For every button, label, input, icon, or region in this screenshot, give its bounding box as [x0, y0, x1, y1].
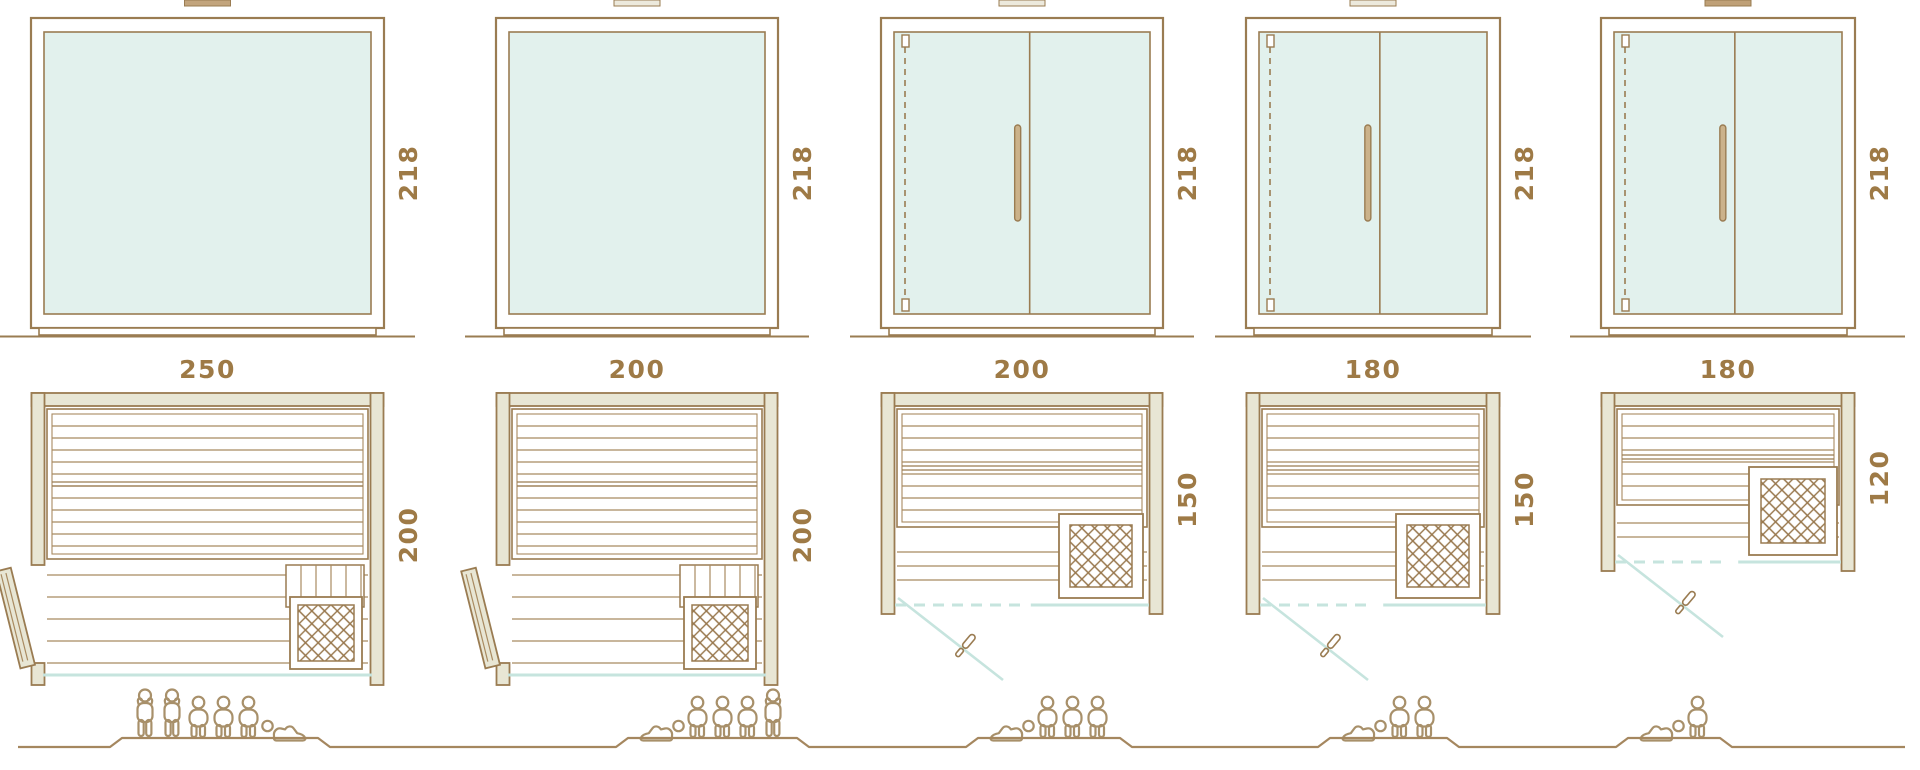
- person-sitting-icon: [739, 697, 757, 737]
- elevation-base: [889, 328, 1155, 335]
- glass-panel: [509, 32, 765, 314]
- heater-icon: [1396, 514, 1480, 598]
- door-handle-icon: [1015, 125, 1021, 221]
- person-standing-icon: [766, 690, 781, 737]
- diagram-canvas: 2182502002182002002182001502181801502181…: [0, 0, 1920, 770]
- height-dimension: 218: [788, 145, 817, 202]
- floor-plan-sauna-200x200: [461, 393, 777, 685]
- floor-plan-sauna-250x200: [0, 393, 384, 685]
- bench-platform: [512, 409, 762, 559]
- person-sitting-icon: [1089, 697, 1107, 737]
- capacity-ground-line: [18, 738, 1905, 747]
- glass-panel: [1614, 32, 1842, 314]
- roof-tab-4: [1350, 0, 1396, 6]
- height-dimension: 218: [1173, 145, 1202, 202]
- person-standing-icon: [138, 690, 153, 737]
- glass-panel: [44, 32, 371, 314]
- capacity-group-sauna-200x150: [991, 697, 1107, 741]
- person-sitting-icon: [190, 697, 208, 737]
- elevation-sauna-180x150: [1215, 18, 1531, 337]
- plan-back-wall: [32, 393, 384, 406]
- bench-edge: [52, 414, 363, 554]
- heater-icon: [684, 597, 756, 669]
- plan-back-wall: [882, 393, 1163, 406]
- width-dimension: 200: [994, 355, 1051, 384]
- bench-platform: [1262, 409, 1484, 527]
- person-sitting-icon: [1416, 697, 1434, 737]
- plan-right-wall: [1150, 393, 1163, 614]
- plan-left-wall: [32, 393, 45, 565]
- elevation-sauna-180x120: [1570, 18, 1905, 337]
- floor-plan-sauna-180x120: [1602, 393, 1855, 637]
- elevation-base: [1609, 328, 1847, 335]
- person-sitting-icon: [1689, 697, 1707, 737]
- person-sitting-icon: [714, 697, 732, 737]
- wood-door-open-icon: [0, 568, 35, 669]
- hinge-icon: [1622, 35, 1629, 47]
- roof-tab-1: [185, 0, 231, 6]
- plan-right-wall: [1487, 393, 1500, 614]
- plan-left-wall: [1602, 393, 1615, 571]
- height-dimension: 218: [394, 145, 423, 202]
- plan-back-wall: [1602, 393, 1855, 406]
- plan-right-wall: [765, 393, 778, 685]
- glass-panel: [894, 32, 1150, 314]
- plan-right-wall: [1842, 393, 1855, 571]
- glass-panel: [1259, 32, 1487, 314]
- person-sitting-icon: [215, 697, 233, 737]
- person-standing-icon: [165, 690, 180, 737]
- elevation-base: [504, 328, 770, 335]
- width-dimension: 180: [1345, 355, 1402, 384]
- capacity-group-sauna-180x120: [1641, 697, 1707, 741]
- person-sitting-icon: [689, 697, 707, 737]
- bench-edge: [902, 414, 1142, 522]
- plan-right-wall: [371, 393, 384, 685]
- elevation-sauna-200x150: [850, 18, 1194, 337]
- roof-tab-5: [1705, 0, 1751, 6]
- person-sitting-icon: [240, 697, 258, 737]
- floor-plan-sauna-180x150: [1247, 393, 1500, 680]
- hinge-icon: [902, 35, 909, 47]
- roof-tab-2: [614, 0, 660, 6]
- height-dimension: 218: [1510, 145, 1539, 202]
- heater-icon: [1749, 467, 1837, 555]
- bench-edge: [1267, 414, 1479, 522]
- plan-back-wall: [1247, 393, 1500, 406]
- height-dimension: 218: [1865, 145, 1894, 202]
- door-handle-icon: [1365, 125, 1371, 221]
- door-swing-icon: [1618, 555, 1723, 637]
- door-swing-icon: [898, 598, 1003, 680]
- elevation-sauna-250x200: [0, 18, 415, 337]
- door-handle-icon: [1720, 125, 1726, 221]
- person-sitting-icon: [1391, 697, 1409, 737]
- floor-plan-sauna-200x150: [882, 393, 1163, 680]
- depth-dimension: 150: [1510, 471, 1539, 528]
- hinge-icon: [1267, 299, 1274, 311]
- hinge-icon: [1622, 299, 1629, 311]
- door-swing-icon: [1263, 598, 1368, 680]
- depth-dimension: 200: [394, 507, 423, 564]
- width-dimension: 250: [179, 355, 236, 384]
- hinge-icon: [1267, 35, 1274, 47]
- capacity-group-sauna-180x150: [1343, 697, 1434, 741]
- bench-platform: [897, 409, 1147, 527]
- capacity-group-sauna-250x200: [138, 690, 306, 741]
- plan-back-wall: [497, 393, 778, 406]
- bench-platform: [47, 409, 368, 559]
- heater-icon: [290, 597, 362, 669]
- door-jamb: [32, 663, 45, 685]
- person-sitting-icon: [1039, 697, 1057, 737]
- wood-door-open-icon: [461, 568, 500, 669]
- depth-dimension: 150: [1173, 471, 1202, 528]
- door-jamb: [497, 663, 510, 685]
- elevation-sauna-200x200: [465, 18, 809, 337]
- bench-edge: [517, 414, 757, 554]
- sauna-dimensions-diagram: 2182502002182002002182001502181801502181…: [0, 0, 1920, 770]
- roof-tab-3: [999, 0, 1045, 6]
- depth-dimension: 200: [788, 507, 817, 564]
- depth-dimension: 120: [1865, 450, 1894, 507]
- plan-left-wall: [497, 393, 510, 565]
- heater-icon: [1059, 514, 1143, 598]
- elevation-base: [1254, 328, 1492, 335]
- capacity-group-sauna-200x200: [641, 690, 781, 741]
- plan-left-wall: [882, 393, 895, 614]
- width-dimension: 200: [609, 355, 666, 384]
- hinge-icon: [902, 299, 909, 311]
- person-sitting-icon: [1064, 697, 1082, 737]
- plan-left-wall: [1247, 393, 1260, 614]
- elevation-base: [39, 328, 376, 335]
- width-dimension: 180: [1700, 355, 1757, 384]
